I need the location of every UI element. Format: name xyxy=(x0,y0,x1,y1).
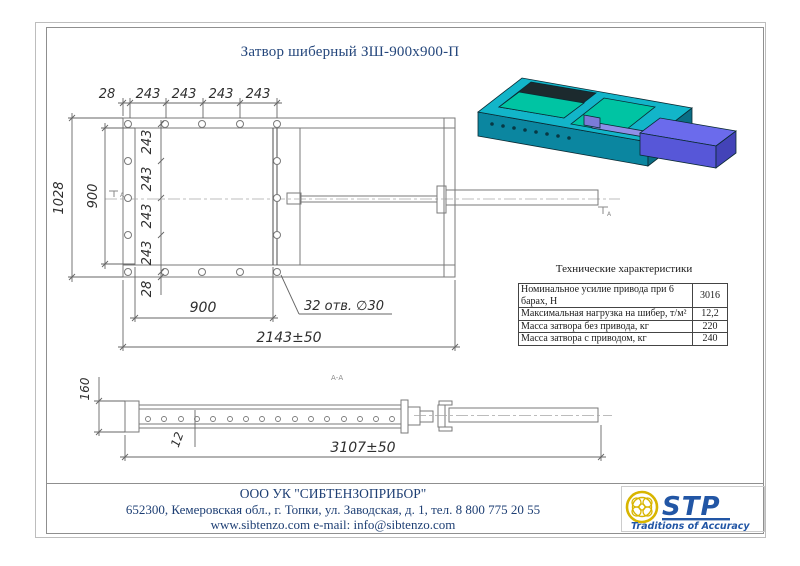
dim-left-243-2: 243 xyxy=(140,167,155,192)
footer-text: ООО УК "СИБТЕНЗОПРИБОР" 652300, Кемеровс… xyxy=(46,486,620,532)
dim-top-28: 28 xyxy=(99,87,116,102)
section-label: А-А xyxy=(331,374,343,382)
spec-value: 220 xyxy=(693,320,728,333)
dim-width-900: 900 xyxy=(190,300,217,316)
logo-box: STP Traditions of Accuracy xyxy=(621,486,765,532)
bolt-holes-side xyxy=(146,417,395,422)
dim-left-28: 28 xyxy=(140,281,155,298)
logo-text: STP xyxy=(662,492,721,522)
section-marker-a-right: А xyxy=(607,211,612,218)
dim-top-243-4: 243 xyxy=(246,87,271,102)
dim-width-total: 2143±50 xyxy=(256,330,321,346)
dim-height-900: 900 xyxy=(86,184,101,209)
dim-side-thickness: 12 xyxy=(168,430,186,449)
spec-value: 240 xyxy=(693,333,728,346)
dim-left-243-4: 243 xyxy=(140,241,155,266)
logo-emblem-icon xyxy=(627,492,657,522)
dim-top-243-3: 243 xyxy=(209,87,234,102)
spec-label: Масса затвора без привода, кг xyxy=(519,320,693,333)
specs-panel: Технические характеристики Номинальное у… xyxy=(518,263,730,346)
spec-label: Масса затвора с приводом, кг xyxy=(519,333,693,346)
company-name: ООО УК "СИБТЕНЗОПРИБОР" xyxy=(46,486,620,502)
dim-top-243-2: 243 xyxy=(172,87,197,102)
stp-logo: STP Traditions of Accuracy xyxy=(622,487,764,531)
dim-height-1028: 1028 xyxy=(52,181,67,214)
spec-value: 3016 xyxy=(693,284,728,308)
spec-label: Номинальное усилие привода при 6 барах, … xyxy=(519,284,693,308)
company-web: www.sibtenzo.com e-mail: info@sibtenzo.c… xyxy=(46,517,620,532)
table-row: Максимальная нагрузка на шибер, т/м² 12,… xyxy=(519,308,728,321)
dim-left-243-3: 243 xyxy=(140,204,155,229)
spec-value: 12,2 xyxy=(693,308,728,321)
table-row: Масса затвора без привода, кг 220 xyxy=(519,320,728,333)
dim-side-length: 3107±50 xyxy=(330,440,395,456)
dim-left-243-1: 243 xyxy=(140,130,155,155)
spec-label: Максимальная нагрузка на шибер, т/м² xyxy=(519,308,693,321)
3d-render xyxy=(478,78,736,168)
specs-table: Номинальное усилие привода при 6 барах, … xyxy=(518,283,728,346)
specs-title: Технические характеристики xyxy=(518,263,730,275)
logo-tagline: Traditions of Accuracy xyxy=(631,521,750,531)
holes-callout: 32 отв. ∅30 xyxy=(304,299,384,314)
dim-side-height: 160 xyxy=(78,377,92,400)
table-row: Номинальное усилие привода при 6 барах, … xyxy=(519,284,728,308)
dim-top-243-1: 243 xyxy=(136,87,161,102)
drawing-sheet: Затвор шиберный ЗШ-900х900-П xyxy=(0,0,800,566)
company-address: 652300, Кемеровская обл., г. Топки, ул. … xyxy=(46,502,620,517)
table-row: Масса затвора с приводом, кг 240 xyxy=(519,333,728,346)
